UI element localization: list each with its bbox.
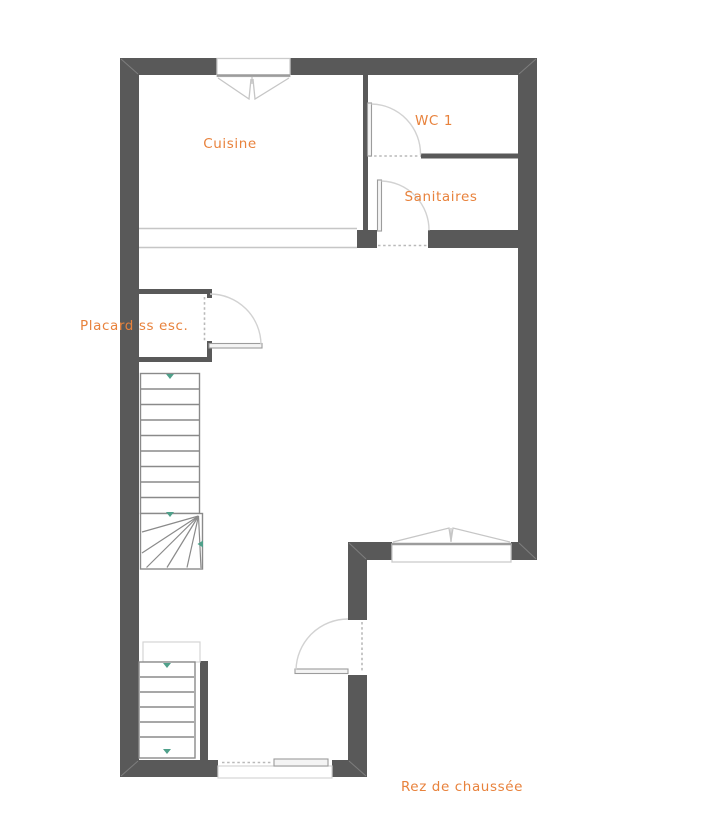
living-room-door [295, 619, 367, 675]
kitchen-window [217, 59, 290, 100]
placard-label: Placard ss esc. [80, 318, 188, 334]
wall-bottom-left-seg [120, 760, 218, 777]
wall-bottom-right-seg [332, 760, 367, 777]
wall-left [120, 58, 139, 777]
floor-label: Rez de chaussée [401, 779, 523, 795]
entrance-door [218, 759, 332, 778]
wall-band-right [428, 230, 518, 248]
winder-steps [141, 514, 203, 570]
wc1-door [368, 103, 422, 159]
sanitaires-label: Sanitaires [404, 189, 477, 205]
floor-plan-canvas: Cuisine WC 1 Sanitaires Placard ss esc. … [0, 0, 720, 824]
wall-top-right [290, 58, 537, 75]
basement-stair-rail [200, 661, 208, 760]
wall-wc1-sanitaires-right [421, 154, 518, 159]
wall-bottomright-horizontal-b [511, 542, 537, 560]
wall-placard-bottom [139, 357, 212, 362]
basement-staircase [139, 642, 200, 758]
living-room-window [392, 528, 511, 562]
main-staircase [141, 374, 203, 570]
floor-plan-viewport: Cuisine WC 1 Sanitaires Placard ss esc. … [0, 0, 720, 824]
wall-band-pillar [357, 230, 377, 248]
wall-placard-top [139, 289, 212, 294]
cuisine-label: Cuisine [203, 136, 257, 152]
wc1-label: WC 1 [415, 113, 453, 129]
kitchen-passage-opening [139, 229, 357, 248]
wall-midright-upper [348, 542, 367, 620]
wall-right [518, 58, 537, 560]
placard-door [205, 294, 263, 348]
